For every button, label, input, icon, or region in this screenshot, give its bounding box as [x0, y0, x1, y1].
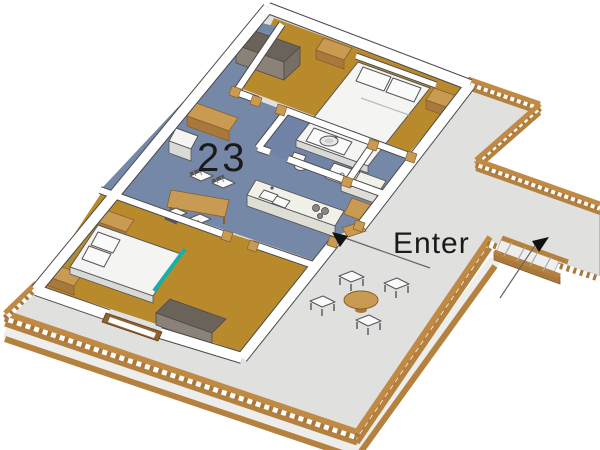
enter-label: Enter — [393, 227, 470, 260]
floor-plan-page: Enter 23 — [0, 0, 600, 450]
unit-number-label: 23 — [197, 136, 248, 180]
floor-plan-illustration: Enter 23 — [0, 0, 600, 450]
